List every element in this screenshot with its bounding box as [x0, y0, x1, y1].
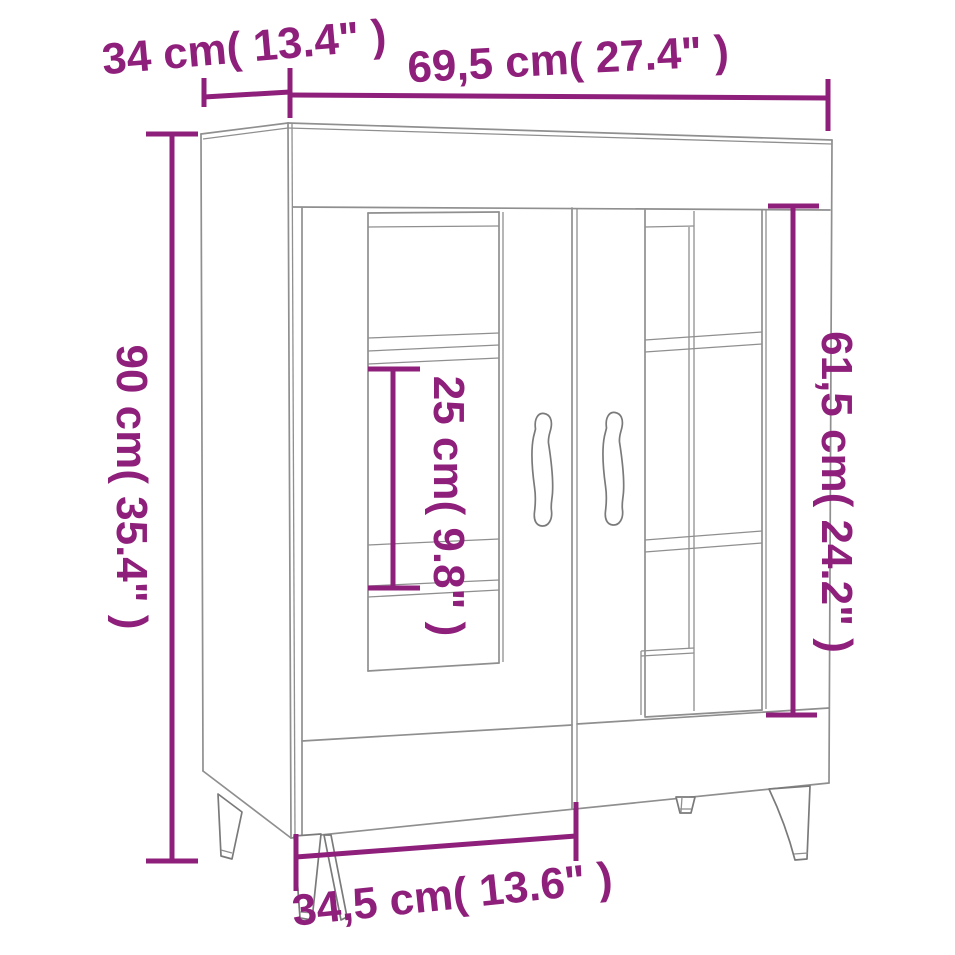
dimension-base-width-label: 34,5 cm( 13.6" )	[290, 853, 615, 935]
cabinet-front-face	[291, 140, 832, 838]
cabinet-left-side-panel	[201, 123, 295, 838]
dimension-height-label: 90 cm( 35.4" )	[107, 344, 156, 629]
right-door-handle	[603, 412, 624, 525]
dimension-annotations: 34 cm( 13.4" ) 69,5 cm( 27.4" ) 90 cm( 3…	[100, 11, 861, 936]
front-right-leg	[769, 786, 810, 860]
back-left-leg	[218, 794, 242, 859]
dimension-width-label: 69,5 cm( 27.4" )	[406, 27, 730, 93]
dimension-shelf-gap-label: 25 cm( 9.8" )	[424, 376, 473, 637]
right-door-glass-panel	[641, 210, 766, 717]
dimension-depth: 34 cm( 13.4" )	[100, 11, 388, 118]
dimension-inner-height: 61,5 cm( 24.2" )	[766, 206, 861, 715]
cabinet-line-drawing	[201, 123, 832, 920]
left-door-handle	[532, 413, 553, 526]
dimension-inner-height-label: 61,5 cm( 24.2" )	[812, 331, 861, 653]
product-dimension-diagram: 34 cm( 13.4" ) 69,5 cm( 27.4" ) 90 cm( 3…	[0, 0, 955, 955]
cabinet-top	[201, 123, 832, 144]
dimension-height: 90 cm( 35.4" )	[107, 134, 198, 861]
diagram-canvas: 34 cm( 13.4" ) 69,5 cm( 27.4" ) 90 cm( 3…	[0, 0, 955, 955]
door-handles	[532, 412, 624, 526]
dimension-depth-label: 34 cm( 13.4" )	[100, 11, 388, 85]
center-back-leg	[676, 797, 695, 813]
cabinet-doors	[302, 208, 829, 836]
